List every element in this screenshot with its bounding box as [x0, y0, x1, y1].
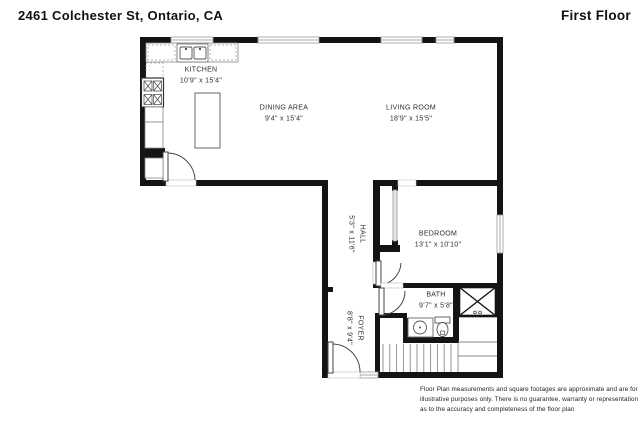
- room-dimensions: 13'1" x 10'10": [415, 240, 461, 251]
- room-name: BEDROOM: [415, 230, 461, 241]
- room-label-bath: BATH 9'7" x 5'8": [419, 291, 453, 312]
- room-dimensions: 10'9" x 15'4": [180, 76, 222, 87]
- closet-sliding-door: [393, 190, 397, 241]
- room-label-living: LIVING ROOM 18'9" x 15'5": [386, 104, 436, 125]
- base-cabinet: [145, 107, 163, 122]
- room-name: BATH: [419, 291, 453, 302]
- base-cabinet: [145, 122, 163, 148]
- bathroom-door: [379, 283, 405, 315]
- room-label-kitchen: KITCHEN 10'9" x 15'4": [180, 66, 222, 87]
- room-name: DINING AREA: [260, 104, 308, 115]
- wall-opening: [398, 180, 416, 186]
- room-dimensions: 9'7" x 5'8": [419, 301, 453, 312]
- room-dimensions: 18'9" x 15'5": [386, 114, 436, 125]
- room-label-hall: HALL 5'3" x 11'6": [346, 215, 367, 253]
- room-dimensions: 8'8" x 9'4": [344, 311, 355, 345]
- floor-plan-drawing: [0, 0, 640, 427]
- dishwasher: [145, 158, 163, 178]
- toilet: [435, 317, 450, 337]
- room-label-bedroom: BEDROOM 13'1" x 10'10": [415, 230, 461, 251]
- floor-plan-page: 2461 Colchester St, Ontario, CA First Fl…: [0, 0, 640, 427]
- kitchen-island: [195, 93, 220, 148]
- living-window-1: [381, 37, 422, 43]
- kitchen-window: [171, 37, 213, 43]
- room-dimensions: 5'3" x 11'6": [346, 215, 357, 253]
- dining-window: [258, 37, 319, 43]
- x-marked-storage: [459, 287, 496, 316]
- bedroom-window: [497, 215, 503, 253]
- bedroom-door: [373, 261, 401, 286]
- room-name: KITCHEN: [180, 66, 222, 77]
- stove-range: [142, 78, 164, 107]
- vanity-sink: [408, 318, 433, 337]
- room-name: HALL: [356, 215, 367, 253]
- disclaimer-text: Floor Plan measurements and square foota…: [420, 385, 640, 414]
- stairs: [383, 342, 497, 372]
- room-dimensions: 9'4" x 15'4": [260, 114, 308, 125]
- room-name: LIVING ROOM: [386, 104, 436, 115]
- room-label-dining: DINING AREA 9'4" x 15'4": [260, 104, 308, 125]
- foyer-sidelight-window: [360, 372, 378, 378]
- living-window-2: [436, 37, 454, 43]
- room-label-foyer: FOYER 8'8" x 9'4": [344, 311, 365, 345]
- kitchen-sink: [177, 44, 208, 62]
- walls: [140, 37, 503, 378]
- front-entry-door: [328, 342, 360, 378]
- kitchen-exterior-door: [163, 152, 196, 186]
- room-name: FOYER: [354, 311, 365, 345]
- kitchen-fixtures: [142, 43, 239, 178]
